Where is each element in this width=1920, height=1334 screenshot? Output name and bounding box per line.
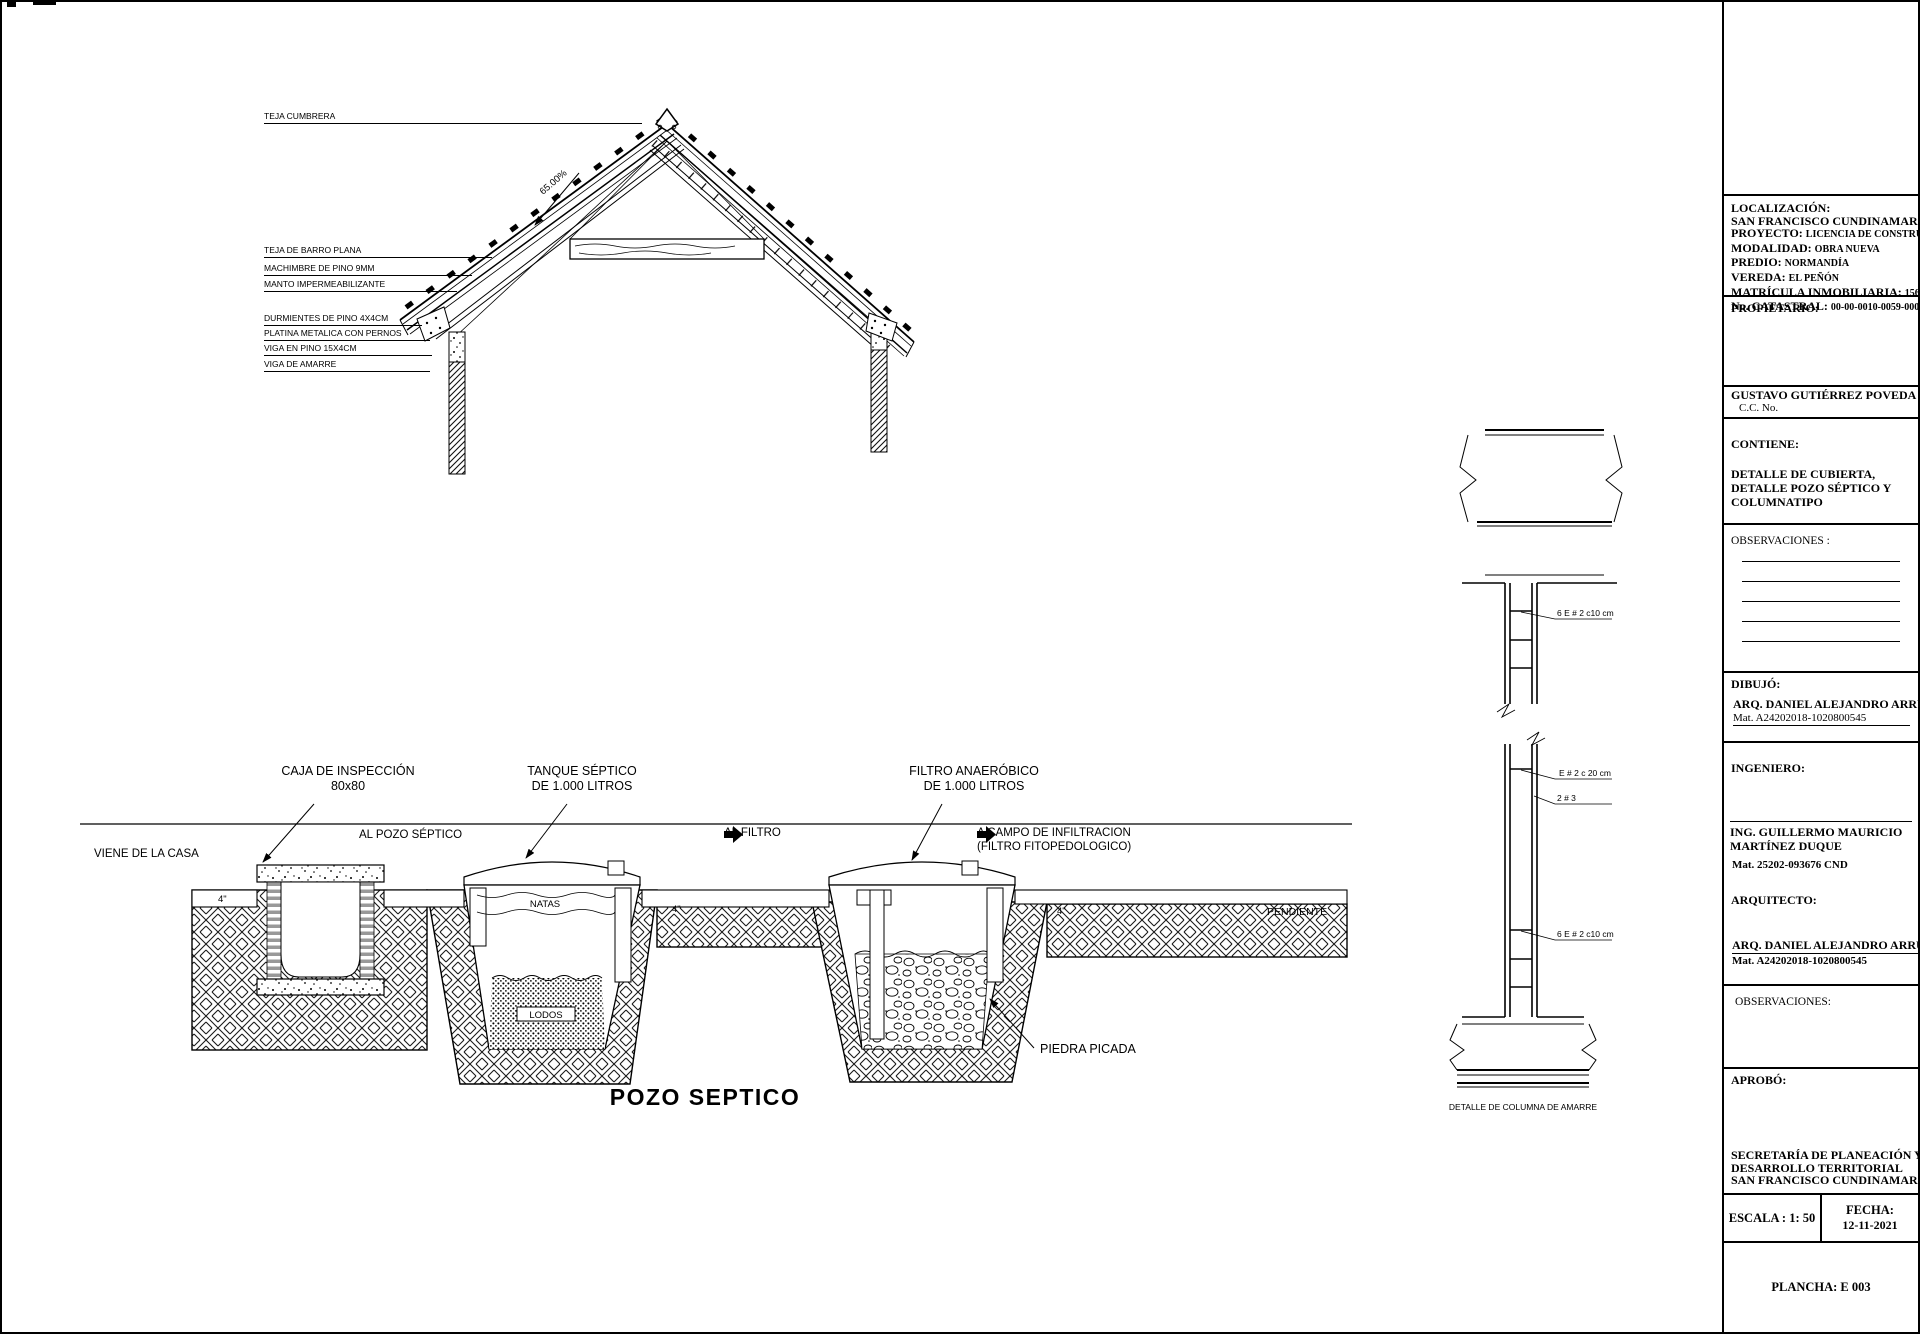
tanque-title: TANQUE SÉPTICO DE 1.000 LITROS: [527, 764, 637, 794]
label-viga-amarre: VIGA DE AMARRE: [264, 358, 430, 372]
filtro-title-line1: FILTRO ANAERÓBICO: [909, 764, 1039, 779]
vereda-label: VEREDA:: [1731, 270, 1786, 284]
label-machimbre: MACHIMBRE DE PINO 9MM: [264, 262, 472, 276]
title-block: LOCALIZACIÓN: SAN FRANCISCO CUNDINAMARCA…: [1722, 2, 1918, 1332]
stirrup-bottom-label: 6 E # 2 c10 cm: [1557, 929, 1614, 939]
tb-plancha: PLANCHA: E 003: [1724, 1243, 1918, 1332]
stirrup-top-label: 6 E # 2 c10 cm: [1557, 608, 1614, 618]
predio-value: NORMANDÍA: [1785, 258, 1849, 269]
plancha-value: PLANCHA: E 003: [1771, 1280, 1870, 1295]
pipe-4in-label: 4": [1057, 906, 1066, 917]
ridge-cap: [656, 109, 678, 131]
al-pozo-label: AL POZO SÉPTICO: [359, 828, 462, 842]
pozo-septico-title: POZO SEPTICO: [610, 1084, 801, 1111]
fecha-value: 12-11-2021: [1842, 1218, 1897, 1233]
tanque-title-line1: TANQUE SÉPTICO: [527, 764, 637, 779]
label-text: PLATINA METALICA CON PERNOS: [264, 328, 402, 338]
pipe-4in-label: 4": [218, 894, 227, 905]
plan-sheet: 65.00% TEJA CUMBRERA TEJA DE BARRO PLANA…: [0, 0, 1920, 1334]
a-campo-line2: (FILTRO FITOPEDOLOGICO): [977, 840, 1131, 854]
rebar-label: 2 # 3: [1557, 793, 1576, 803]
observaciones2-label: OBSERVACIONES:: [1731, 990, 1911, 1008]
a-campo-flow: A CAMPO DE INFILTRACION (FILTRO FITOPEDO…: [977, 826, 1131, 854]
arquitecto-label: ARQUITECTO:: [1731, 893, 1817, 908]
modalidad-value: OBRA NUEVA: [1815, 244, 1880, 255]
tb-dibujo: DIBUJÓ: ARQ. DANIEL ALEJANDRO ARRUBLA Ma…: [1724, 673, 1918, 743]
natas-label: NATAS: [530, 899, 560, 910]
label-text: DURMIENTES DE PINO 4X4CM: [264, 313, 388, 323]
slope-label: 65.00%: [538, 167, 570, 197]
escala-value: ESCALA : 1: 50: [1729, 1211, 1815, 1226]
vereda-value: EL PEÑÓN: [1789, 273, 1839, 284]
caja-inspeccion: [257, 865, 384, 995]
arquitecto-mat: Mat. A24202018-1020800545: [1732, 955, 1867, 967]
cc-label: C.C. No.: [1731, 402, 1911, 414]
label-platina: PLATINA METALICA CON PERNOS: [264, 327, 430, 341]
pendiente-label: PENDIENTE: [1267, 906, 1327, 918]
pipe-4in-label: 4": [672, 904, 681, 915]
lodos-label: LODOS: [529, 1010, 562, 1021]
tie-beam: [570, 239, 764, 259]
label-manto: MANTO IMPERMEABILIZANTE: [264, 278, 457, 292]
location-map-box: [1724, 2, 1918, 196]
column-top-slab: [1460, 430, 1622, 583]
tanque-title-line2: DE 1.000 LITROS: [527, 779, 637, 794]
column-bottom-slab: [1450, 1017, 1596, 1087]
tb-ingeniero-arquitecto: INGENIERO: ING. GUILLERMO MAURICIO MARTÍ…: [1724, 743, 1918, 986]
aprobo-label: APROBÓ:: [1731, 1073, 1911, 1088]
aprobo-line1: SECRETARÍA DE PLANEACIÓN Y: [1731, 1149, 1920, 1162]
label-durmientes: DURMIENTES DE PINO 4X4CM: [264, 312, 422, 326]
roof-left-slope: [397, 118, 684, 339]
observaciones1-label: OBSERVACIONES :: [1731, 529, 1911, 547]
proyecto-value: LICENCIA DE CONSTRUCCIÓN: [1806, 229, 1920, 240]
tb-contiene: CONTIENE: DETALLE DE CUBIERTA, DETALLE P…: [1724, 419, 1918, 525]
label-text: MANTO IMPERMEABILIZANTE: [264, 279, 385, 289]
propietario-label: PROPIETARIO:: [1731, 301, 1911, 316]
observaciones-line: [1742, 621, 1900, 622]
contiene-value: DETALLE DE CUBIERTA, DETALLE POZO SÉPTIC…: [1731, 467, 1912, 509]
tb-localizacion: LOCALIZACIÓN: SAN FRANCISCO CUNDINAMARCA…: [1724, 196, 1918, 297]
label-teja-cumbrera: TEJA CUMBRERA: [264, 110, 642, 124]
caja-title-line1: CAJA DE INSPECCIÓN: [281, 764, 414, 779]
ingeniero-nombre: ING. GUILLERMO MAURICIO MARTÍNEZ DUQUE: [1730, 826, 1914, 853]
column-caption: DETALLE DE COLUMNA DE AMARRE: [1449, 1102, 1597, 1112]
viene-casa-label: VIENE DE LA CASA: [94, 847, 199, 861]
label-text: TEJA CUMBRERA: [264, 111, 335, 121]
roof-right-column: [871, 320, 887, 452]
label-text: MACHIMBRE DE PINO 9MM: [264, 263, 375, 273]
predio-label: PREDIO:: [1731, 255, 1782, 269]
modalidad-label: MODALIDAD:: [1731, 241, 1812, 255]
roof-left-column: [449, 332, 465, 474]
label-text: VIGA EN PINO 15X4CM: [264, 343, 357, 353]
ingeniero-label: INGENIERO:: [1731, 761, 1805, 776]
observaciones-line: [1742, 641, 1900, 642]
fecha-label: FECHA:: [1846, 1203, 1894, 1218]
proyecto-label: PROYECTO:: [1731, 226, 1803, 240]
tb-escala-fecha: ESCALA : 1: 50 FECHA: 12-11-2021: [1724, 1195, 1918, 1243]
filtro-title: FILTRO ANAERÓBICO DE 1.000 LITROS: [909, 764, 1039, 794]
tb-propietario-nombre: GUSTAVO GUTIÉRREZ POVEDA C.C. No.: [1724, 387, 1918, 419]
dibujo-mat: Mat. A24202018-1020800545: [1733, 712, 1910, 726]
localizacion-label: LOCALIZACIÓN:: [1731, 202, 1911, 215]
label-text: VIGA DE AMARRE: [264, 359, 336, 369]
flow-arrow-icon: [977, 826, 997, 843]
al-filtro-flow: AL FILTRO: [724, 826, 781, 840]
caja-title: CAJA DE INSPECCIÓN 80x80: [281, 764, 414, 794]
a-campo-line1: A CAMPO DE INFILTRACION: [977, 826, 1131, 840]
dibujo-label: DIBUJÓ:: [1731, 677, 1911, 692]
filtro-title-line2: DE 1.000 LITROS: [909, 779, 1039, 794]
column-shaft: [1497, 583, 1545, 1017]
tb-propietario: PROPIETARIO:: [1724, 297, 1918, 387]
column-detail-drawing: 6 E # 2 c10 cm E # 2 c 20 cm 2 # 3 6 E #…: [1447, 422, 1627, 1122]
signature-line: [1730, 821, 1912, 822]
dibujo-nombre: ARQ. DANIEL ALEJANDRO ARRUBLA: [1733, 698, 1920, 711]
flow-arrow-icon: [724, 826, 744, 843]
fecha-cell: FECHA: 12-11-2021: [1822, 1195, 1918, 1241]
tb-observaciones-1: OBSERVACIONES :: [1724, 525, 1918, 673]
arquitecto-nombre: ARQ. DANIEL ALEJANDRO ARRUBLA: [1732, 939, 1920, 954]
aprobo-line3: SAN FRANCISCO CUNDINAMARCA: [1731, 1174, 1920, 1187]
a-campo-label: A CAMPO DE INFILTRACION (FILTRO FITOPEDO…: [977, 826, 1131, 854]
propietario-nombre: GUSTAVO GUTIÉRREZ POVEDA: [1731, 389, 1911, 402]
label-teja-barro: TEJA DE BARRO PLANA: [264, 244, 492, 258]
observaciones-line: [1742, 581, 1900, 582]
escala-cell: ESCALA : 1: 50: [1724, 1195, 1822, 1241]
tb-aprobo: APROBÓ: SECRETARÍA DE PLANEACIÓN Y DESAR…: [1724, 1069, 1918, 1195]
contiene-label: CONTIENE:: [1731, 437, 1799, 452]
label-viga-pino: VIGA EN PINO 15X4CM: [264, 342, 432, 356]
label-text: TEJA DE BARRO PLANA: [264, 245, 361, 255]
stirrup-mid-label: E # 2 c 20 cm: [1559, 768, 1611, 778]
aprobo-entity: SECRETARÍA DE PLANEACIÓN Y DESARROLLO TE…: [1731, 1149, 1920, 1187]
tb-observaciones-2: OBSERVACIONES:: [1724, 986, 1918, 1069]
observaciones-line: [1742, 601, 1900, 602]
filtro-anaerobico: [829, 861, 1015, 1049]
ingeniero-mat: Mat. 25202-093676 CND: [1732, 859, 1848, 871]
caja-title-line2: 80x80: [281, 779, 414, 794]
observaciones-line: [1742, 561, 1900, 562]
piedra-picada-label: PIEDRA PICADA: [1040, 1042, 1136, 1056]
septic-drawing: NATAS LODOS: [62, 692, 1362, 1122]
drawing-area: 65.00% TEJA CUMBRERA TEJA DE BARRO PLANA…: [2, 2, 1722, 1332]
